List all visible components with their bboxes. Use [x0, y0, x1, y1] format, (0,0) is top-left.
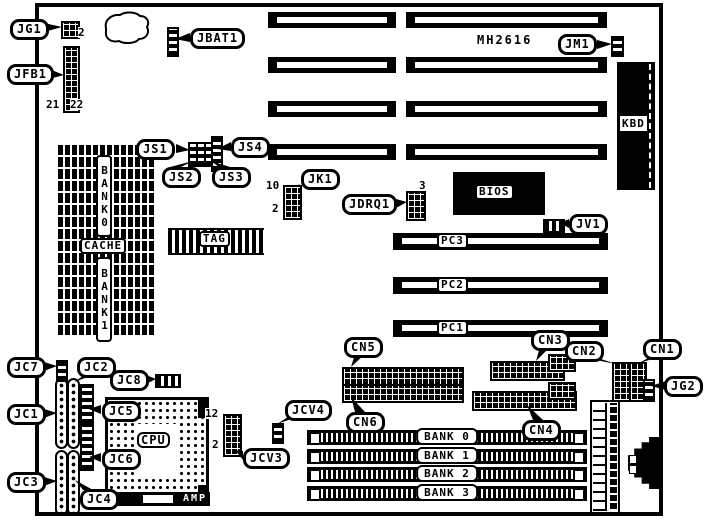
bios-label: BIOS: [475, 184, 514, 200]
label-jc5: JC5: [102, 401, 141, 422]
label-jc1: JC1: [7, 404, 46, 425]
label-cn6: CN6: [346, 412, 385, 433]
label-jc7: JC7: [7, 357, 46, 378]
label-jfb1: JFB1: [7, 64, 54, 85]
jdrq1-pin3-number: 3: [419, 180, 426, 191]
label-jcv4: JCV4: [285, 400, 332, 421]
motherboard-diagram: MH2616 KBD BIOS PC3 PC2 PC1 BANK0 CACHE …: [0, 0, 706, 522]
label-jc3: JC3: [7, 472, 46, 493]
label-jc4: JC4: [80, 489, 119, 510]
label-js2: JS2: [162, 167, 201, 188]
label-jg1: JG1: [10, 19, 49, 40]
pc3-label: PC3: [437, 233, 468, 249]
cache-label: CACHE: [80, 238, 126, 254]
label-jg2: JG2: [664, 376, 703, 397]
jfb1-pin22-number: 22: [70, 99, 83, 110]
label-jc8: JC8: [110, 370, 149, 391]
crystal-outline: [106, 12, 148, 43]
cache-bank1-label: BANK1: [96, 257, 112, 342]
label-jbat1: JBAT1: [190, 28, 245, 49]
label-jcv3: JCV3: [243, 448, 290, 469]
label-cn1: CN1: [643, 339, 682, 360]
label-jm1: JM1: [558, 34, 597, 55]
label-cn5: CN5: [344, 337, 383, 358]
jg1-pin2-number: 2: [78, 27, 85, 38]
label-jdrq1: JDRQ1: [342, 194, 397, 215]
label-jv1: JV1: [569, 214, 608, 235]
jcv3-pin2-number: 2: [212, 439, 219, 450]
label-cn4: CN4: [522, 420, 561, 441]
pc2-label: PC2: [437, 277, 468, 293]
label-js3: JS3: [212, 167, 251, 188]
label-js1: JS1: [136, 139, 175, 160]
jfb1-pin21-number: 21: [46, 99, 59, 110]
label-cn3: CN3: [531, 330, 570, 351]
jcv3-pin12-number: 12: [205, 408, 218, 419]
label-jc6: JC6: [102, 449, 141, 470]
tag-label: TAG: [199, 231, 230, 247]
label-jk1: JK1: [301, 169, 340, 190]
chip-marking-mh2616: MH2616: [477, 33, 532, 47]
cpu-label: CPU: [137, 432, 170, 448]
jk1-pin2-number: 2: [272, 203, 279, 214]
label-cn2: CN2: [565, 341, 604, 362]
label-js4: JS4: [231, 137, 270, 158]
cache-bank0-label: BANK0: [96, 155, 112, 237]
pc1-label: PC1: [437, 320, 468, 336]
jk1-pin10-number: 10: [266, 180, 279, 191]
